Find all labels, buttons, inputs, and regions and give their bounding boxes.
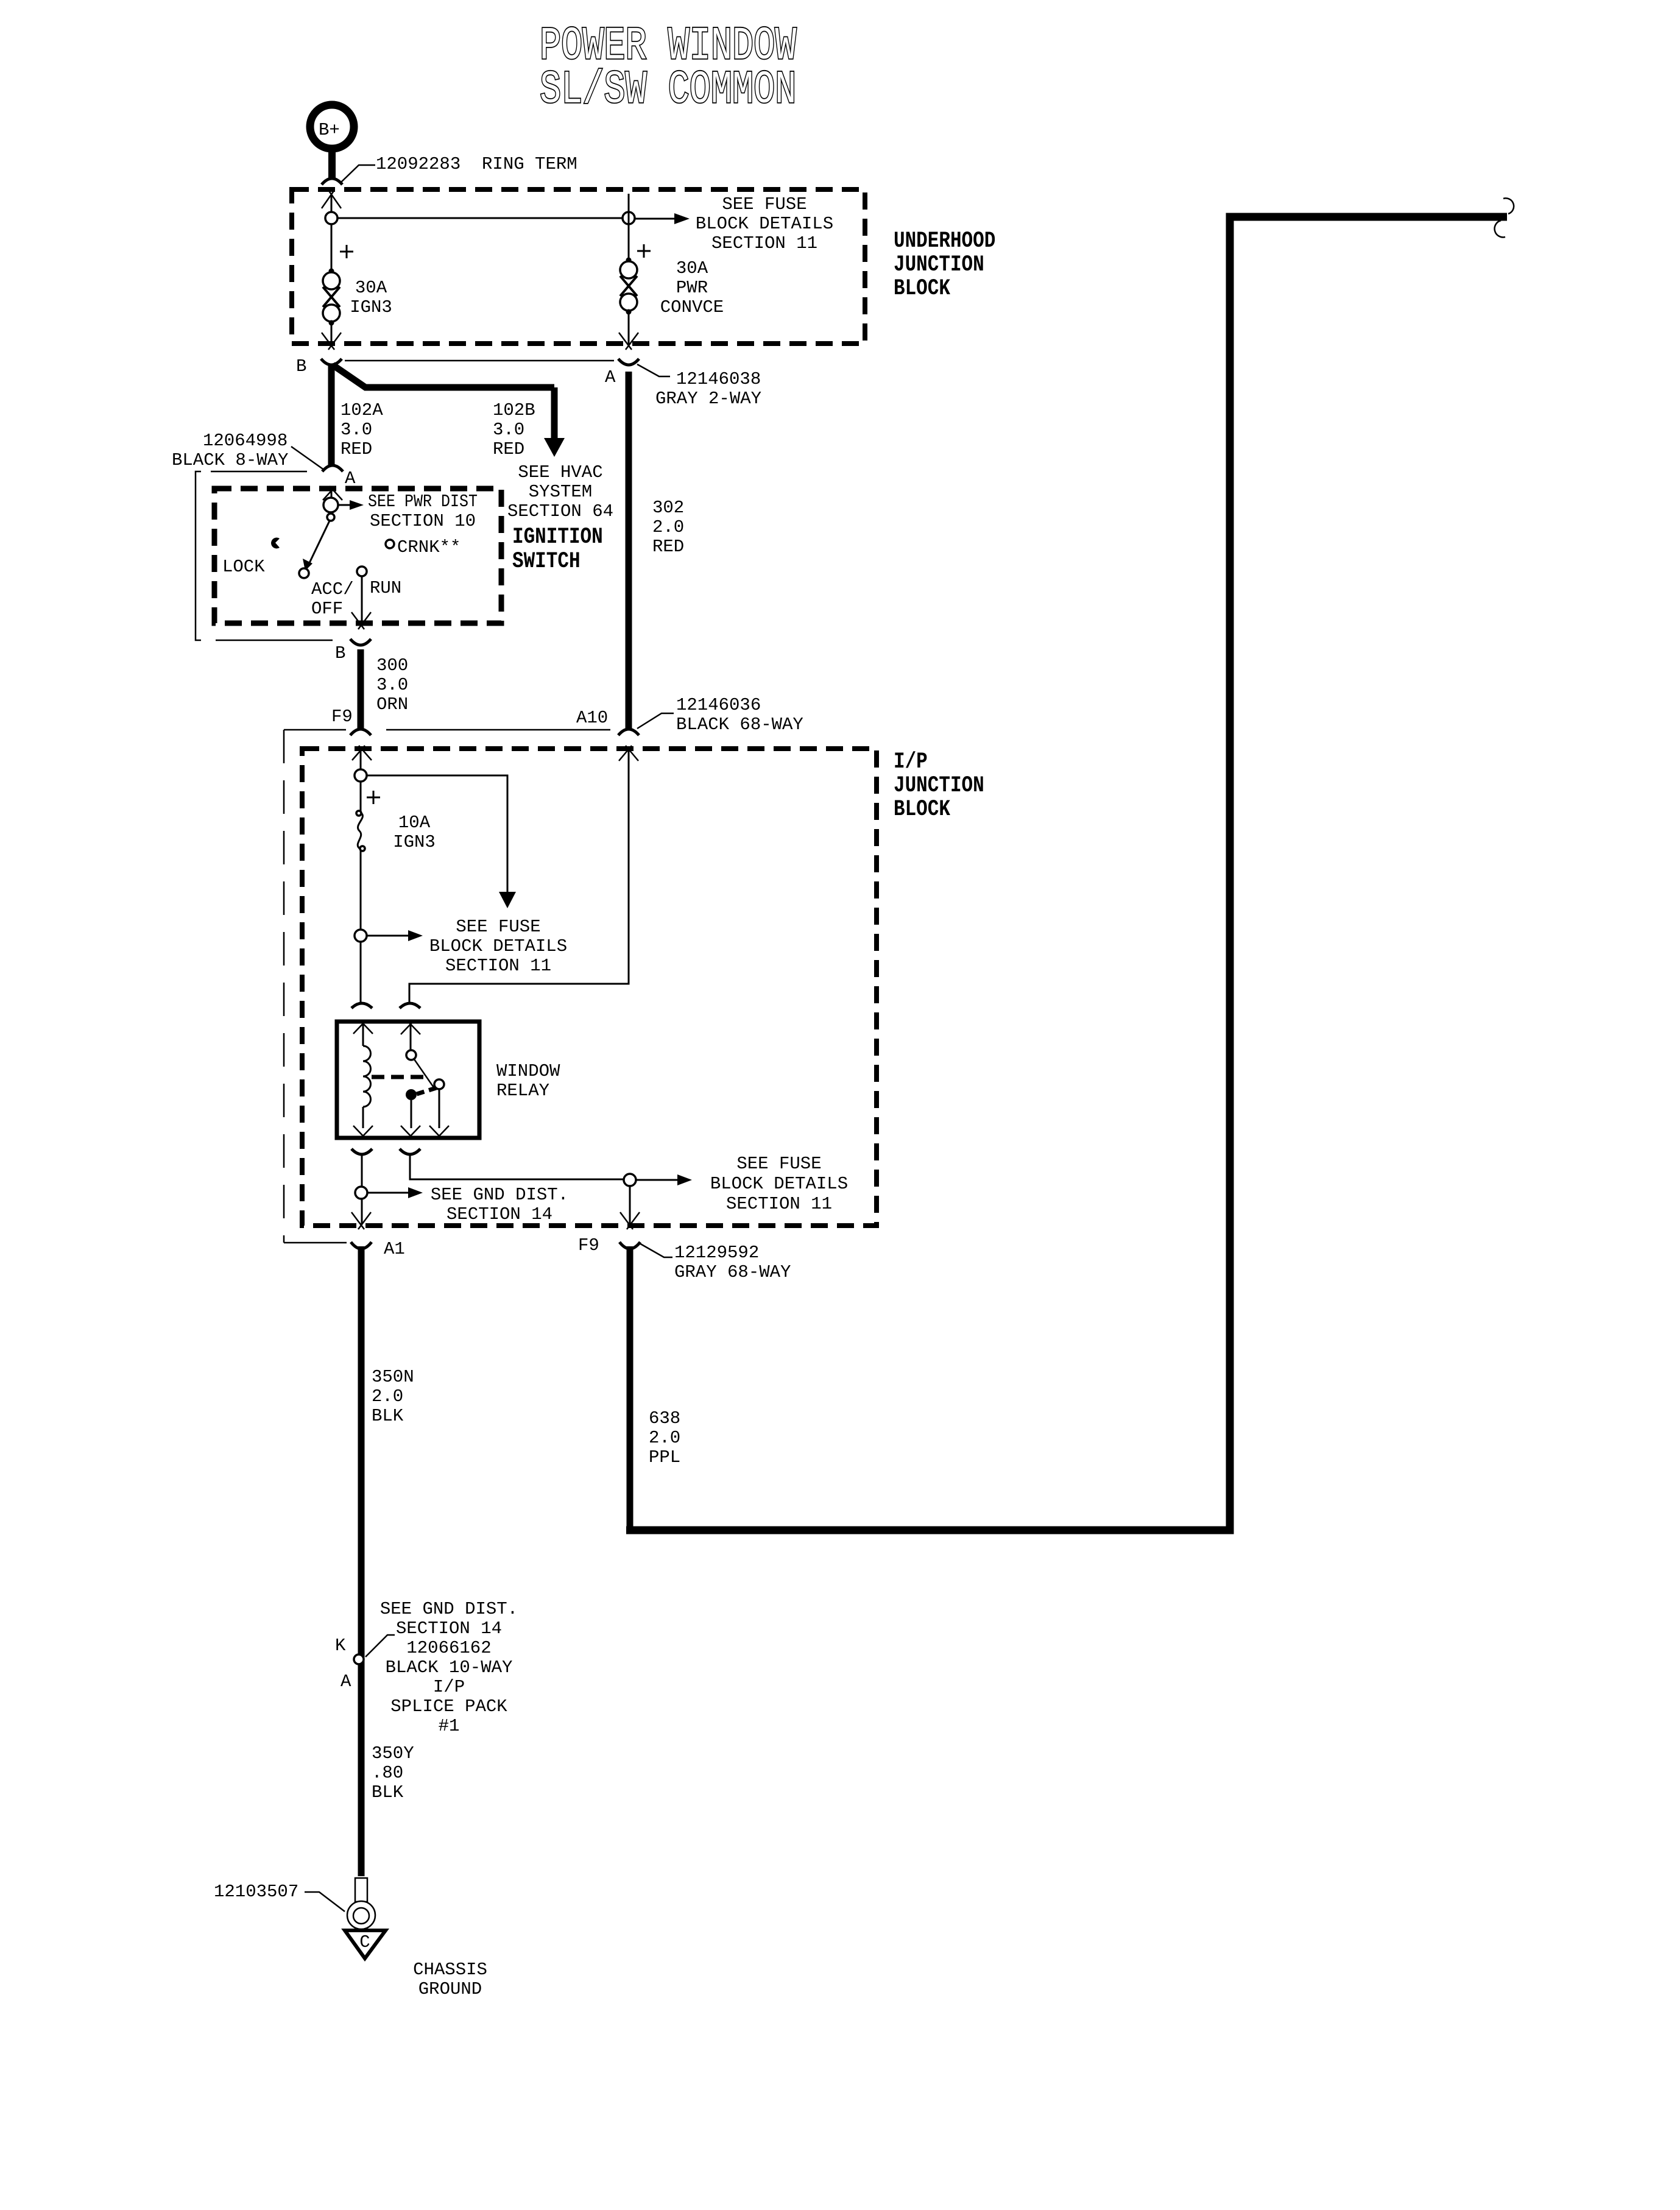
svg-text:SEE FUSE: SEE FUSE [736,1154,821,1174]
svg-text:WINDOW: WINDOW [496,1061,560,1081]
svg-text:OFF: OFF [311,599,343,619]
svg-text:RUN: RUN [370,578,401,598]
svg-text:2.0: 2.0 [649,1428,680,1448]
svg-text:SEE GND DIST.: SEE GND DIST. [431,1185,568,1205]
svg-text:SEE FUSE: SEE FUSE [456,917,540,937]
svg-text:10A: 10A [398,813,431,833]
svg-text:GROUND: GROUND [418,1979,482,1999]
svg-text:A: A [341,1672,351,1692]
svg-text:SWITCH: SWITCH [512,548,581,574]
svg-text:BLACK 68-WAY: BLACK 68-WAY [676,715,803,735]
svg-text:CONVCE: CONVCE [660,297,724,317]
svg-text:3.0: 3.0 [341,420,372,440]
svg-text:SECTION 64: SECTION 64 [507,501,613,521]
svg-text:RELAY: RELAY [496,1081,549,1101]
svg-text:BLK: BLK [372,1782,404,1802]
svg-text:3.0: 3.0 [376,675,408,695]
svg-text:BLOCK DETAILS: BLOCK DETAILS [696,214,833,234]
svg-text:PWR: PWR [676,278,708,298]
svg-text:102A: 102A [341,400,383,420]
svg-text:A: A [345,468,356,489]
svg-text:SEE HVAC: SEE HVAC [518,462,602,482]
svg-text:I/P: I/P [894,749,928,775]
svg-text:SECTION 11: SECTION 11 [726,1194,832,1214]
svg-text:BLOCK: BLOCK [894,796,950,822]
svg-text:SECTION 10: SECTION 10 [370,511,476,531]
svg-text:BLACK 10-WAY: BLACK 10-WAY [386,1657,513,1678]
svg-text:12146036: 12146036 [676,695,761,715]
svg-text:12129592: 12129592 [674,1243,759,1263]
svg-text:I/P: I/P [433,1677,465,1697]
svg-text:PPL: PPL [649,1447,680,1467]
svg-text:RED: RED [493,439,524,459]
svg-text:300: 300 [376,655,408,676]
svg-text:RED: RED [652,537,684,557]
svg-text:BLK: BLK [372,1406,404,1426]
svg-text:SEE GND DIST.: SEE GND DIST. [380,1599,518,1619]
svg-text:A10: A10 [576,708,608,728]
svg-text:102B: 102B [493,400,535,420]
svg-text:K: K [335,1636,346,1656]
svg-text:F9: F9 [331,707,353,727]
svg-text:12064998: 12064998 [203,431,288,451]
svg-text:BLACK 8-WAY: BLACK 8-WAY [172,450,288,470]
svg-text:SECTION 14: SECTION 14 [396,1619,502,1639]
svg-text:ORN: ORN [376,694,408,715]
svg-text:12146038: 12146038 [676,369,761,389]
svg-text:A: A [605,367,616,387]
svg-text:IGN3: IGN3 [393,832,436,852]
svg-text:12066162: 12066162 [406,1638,491,1658]
svg-text:B+: B+ [319,120,340,140]
svg-text:SYSTEM: SYSTEM [529,482,592,502]
svg-text:CRNK**: CRNK** [397,537,461,557]
svg-text:C: C [359,1932,370,1952]
svg-text:B: B [296,356,306,376]
svg-text:SECTION 14: SECTION 14 [446,1204,552,1224]
svg-text:BLOCK DETAILS: BLOCK DETAILS [710,1174,848,1194]
svg-text:SPLICE PACK: SPLICE PACK [390,1696,507,1717]
svg-text:CHASSIS: CHASSIS [413,1960,487,1980]
svg-text:SECTION 11: SECTION 11 [445,956,551,976]
svg-text:LOCK: LOCK [222,557,265,577]
svg-text:JUNCTION: JUNCTION [894,772,984,799]
svg-text:GRAY 2-WAY: GRAY 2-WAY [655,389,761,409]
svg-text:350Y: 350Y [372,1743,414,1763]
svg-text:.80: .80 [372,1763,403,1783]
svg-text:SL/SW COMMON: SL/SW COMMON [540,64,796,116]
svg-text:BLOCK: BLOCK [894,275,950,302]
svg-text:GRAY 68-WAY: GRAY 68-WAY [674,1262,791,1282]
svg-text:RED: RED [341,439,372,459]
svg-text:SECTION 11: SECTION 11 [711,233,817,253]
svg-text:B: B [335,643,345,663]
svg-text:638: 638 [649,1408,680,1428]
svg-text:30A: 30A [355,278,387,298]
svg-text:SEE FUSE: SEE FUSE [722,194,806,214]
svg-text:12103507: 12103507 [214,1882,298,1902]
svg-text:350N: 350N [372,1367,414,1387]
svg-text:#1: #1 [439,1716,460,1736]
svg-text:UNDERHOOD: UNDERHOOD [894,228,995,254]
svg-text:3.0: 3.0 [493,420,524,440]
svg-text:F9: F9 [578,1235,599,1255]
svg-text:JUNCTION: JUNCTION [894,252,984,278]
svg-text:302: 302 [652,498,684,518]
svg-text:30A: 30A [676,258,708,278]
svg-text:IGN3: IGN3 [350,297,392,317]
svg-text:12092283 RING TERM: 12092283 RING TERM [376,154,577,174]
svg-text:BLOCK DETAILS: BLOCK DETAILS [429,936,567,956]
svg-text:2.0: 2.0 [652,517,684,537]
svg-text:ACC/: ACC/ [311,579,354,599]
svg-text:IGNITION: IGNITION [512,524,603,550]
svg-text:A1: A1 [384,1239,405,1259]
svg-text:SEE PWR DIST: SEE PWR DIST [368,492,478,512]
svg-text:2.0: 2.0 [372,1386,403,1407]
